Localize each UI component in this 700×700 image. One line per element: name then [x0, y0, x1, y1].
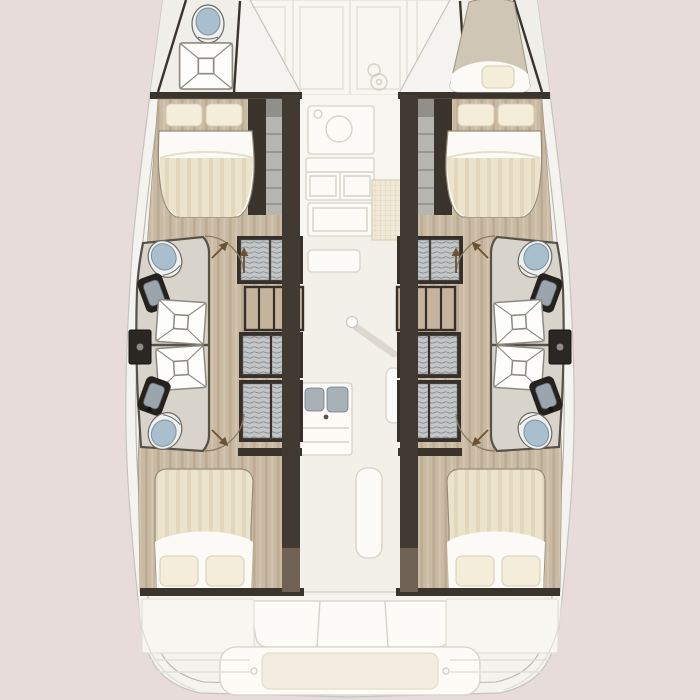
pillow — [206, 104, 242, 126]
galley-cabinet — [306, 158, 374, 200]
galley-stove — [308, 106, 374, 154]
saloon-bench — [356, 468, 382, 558]
platform-cushion — [262, 653, 438, 689]
cockpit-side-locker — [142, 599, 254, 653]
aft-cabin-bed — [155, 469, 253, 591]
toilet-icon — [192, 5, 224, 43]
saloon-galley — [298, 95, 408, 595]
aft-bulkhead — [140, 588, 304, 596]
pillow — [206, 556, 244, 586]
galley-drawers — [308, 203, 372, 236]
bathroom-storage-box — [129, 330, 151, 364]
nacelle-wall — [282, 95, 300, 592]
shower-icon — [180, 43, 233, 89]
saloon-furniture — [308, 250, 360, 272]
nacelle-wall-aft — [282, 548, 300, 592]
galley-sink-unit — [300, 383, 352, 455]
pillow — [166, 104, 202, 126]
cockpit-bench — [251, 601, 455, 647]
forward-bulkhead — [150, 92, 302, 99]
cockpit-side-locker — [446, 599, 558, 653]
pillow — [482, 66, 514, 88]
catamaran-floorplan: Catamaran layout plan: 4 guest double ca… — [0, 0, 700, 700]
cockpit-platform — [220, 647, 480, 695]
forward-cabin-bed — [158, 104, 254, 217]
hull-bathrooms — [129, 235, 209, 456]
pillow — [160, 556, 198, 586]
floorplan-stage: Catamaran layout plan: 4 guest double ca… — [0, 0, 700, 700]
shower-icon — [156, 299, 207, 344]
